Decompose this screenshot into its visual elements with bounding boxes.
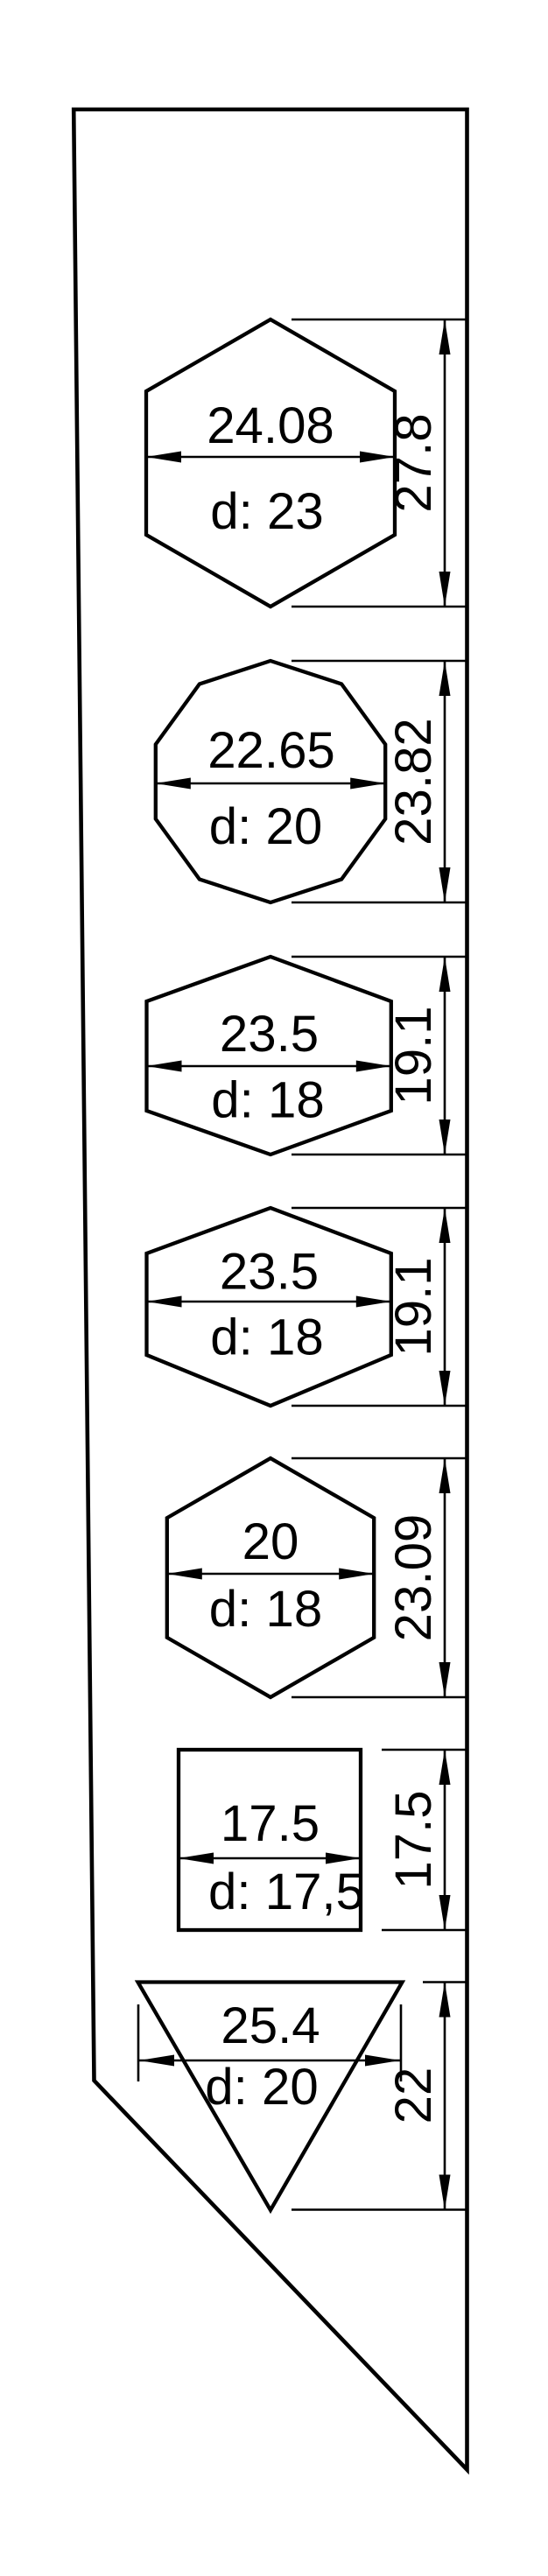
svg-text:23.82: 23.82 — [385, 718, 442, 846]
svg-text:17.5: 17.5 — [385, 1790, 442, 1889]
svg-text:d: 18: d: 18 — [210, 1309, 323, 1366]
svg-text:20: 20 — [242, 1513, 299, 1570]
svg-text:17.5: 17.5 — [221, 1795, 320, 1852]
svg-text:19.1: 19.1 — [385, 1257, 442, 1356]
svg-text:d: 23: d: 23 — [210, 483, 323, 540]
svg-text:d: 20: d: 20 — [205, 2059, 318, 2116]
svg-text:27.8: 27.8 — [385, 413, 442, 512]
svg-text:19.1: 19.1 — [385, 1006, 442, 1105]
svg-text:23.5: 23.5 — [220, 1006, 319, 1063]
svg-text:22.65: 22.65 — [207, 722, 335, 779]
svg-text:24.08: 24.08 — [207, 397, 334, 454]
svg-text:d: 18: d: 18 — [209, 1581, 322, 1638]
svg-text:25.4: 25.4 — [221, 1997, 320, 2054]
svg-text:d: 20: d: 20 — [209, 798, 322, 855]
svg-text:22: 22 — [385, 2067, 442, 2124]
svg-text:d: 18: d: 18 — [211, 1072, 324, 1129]
svg-text:23.09: 23.09 — [385, 1514, 442, 1642]
svg-text:23.5: 23.5 — [220, 1244, 319, 1301]
svg-text:d: 17,5: d: 17,5 — [208, 1864, 364, 1920]
